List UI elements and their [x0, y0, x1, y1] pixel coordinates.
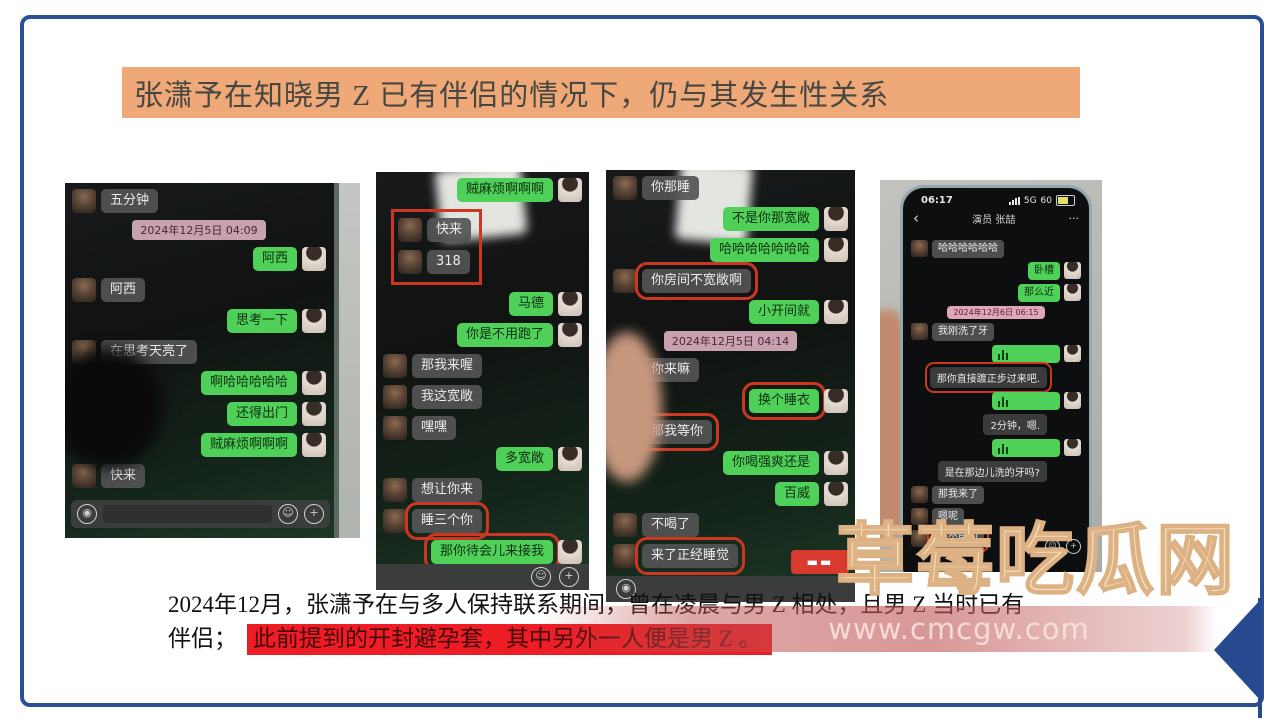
chat-message: 你房间不宽敞啊	[613, 269, 848, 293]
avatar	[558, 540, 582, 564]
avatar	[302, 247, 326, 271]
chat-message: 马德	[383, 292, 582, 316]
timestamp-pill: 2024年12月5日 04:09	[132, 220, 265, 240]
avatar	[383, 478, 407, 502]
voice-input-icon: ◉	[77, 504, 97, 524]
voice-transcript: 那你直接踱正步过来吧.	[911, 367, 1081, 388]
voice-message-bubble	[992, 392, 1060, 410]
title-banner: 张潇予在知晓男 Z 已有伴侣的情况下，仍与其发生性关系	[122, 67, 1080, 118]
chat-message: 那你待会儿来接我	[383, 540, 582, 564]
timestamp-pill: 2024年12月6日 06:15	[947, 306, 1044, 319]
avatar	[1064, 439, 1081, 456]
emoji-icon: ☺	[278, 504, 298, 524]
avatar	[72, 189, 96, 213]
avatar	[383, 385, 407, 409]
watermark-url: www.cmcgw.com	[828, 612, 1089, 646]
voice-transcript-bubble: 2分钟，嗯.	[983, 414, 1047, 435]
battery-icon	[1056, 195, 1075, 206]
chat-message: 哈哈哈哈哈哈哈	[613, 238, 848, 262]
message-bubble: 那么近	[1018, 284, 1060, 302]
avatar	[1064, 284, 1081, 301]
chat-message: 阿西	[72, 278, 326, 302]
message-bubble: 睡三个你	[412, 509, 482, 533]
message-bubble: 马德	[509, 292, 553, 316]
chat-input-bar: ☺ +	[376, 564, 589, 590]
message-bubble: 那我来喔	[412, 354, 482, 378]
phone-2-chat: 贼麻烦啊啊啊快来318马德你是不用跑了那我来喔我这宽敞嘿嘿多宽敞想让你来睡三个你…	[383, 178, 582, 590]
chat-message: 那我来喔	[383, 354, 582, 378]
phone-screenshot-2: 贼麻烦啊啊啊快来318马德你是不用跑了那我来喔我这宽敞嘿嘿多宽敞想让你来睡三个你…	[376, 172, 589, 590]
plus-icon: +	[559, 567, 579, 587]
avatar	[613, 176, 637, 200]
message-bubble: 哈哈哈哈哈哈	[932, 240, 1004, 258]
avatar	[558, 323, 582, 347]
message-bubble: 我这宽敞	[412, 385, 482, 409]
avatar	[613, 544, 637, 568]
chat-message: 贼麻烦啊啊啊	[383, 178, 582, 202]
slide: 张潇予在知晓男 Z 已有伴侣的情况下，仍与其发生性关系 五分钟2024年12月5…	[0, 0, 1280, 720]
avatar	[1064, 262, 1081, 279]
emoji-icon: ☺	[531, 567, 551, 587]
timestamp: 2024年12月6日 06:15	[911, 306, 1081, 319]
back-chevron-icon: ‹	[913, 209, 919, 227]
chat-message: 哈哈哈哈哈哈	[911, 240, 1081, 258]
avatar	[824, 207, 848, 231]
phone-screenshot-3: 你那睡不是你那宽敞哈哈哈哈哈哈哈你房间不宽敞啊小开间就2024年12月5日 04…	[606, 170, 855, 602]
message-bubble: 不是你那宽敞	[723, 207, 819, 231]
avatar	[558, 447, 582, 471]
message-bubble: 阿西	[253, 247, 297, 271]
message-bubble: 你房间不宽敞啊	[642, 269, 751, 293]
phone-edge	[334, 183, 339, 538]
chat-message: 小开间就	[613, 300, 848, 324]
avatar	[911, 240, 928, 257]
message-bubble: 贼麻烦啊啊啊	[457, 178, 553, 202]
message-bubble: 不喝了	[642, 513, 699, 537]
avatar	[1064, 345, 1081, 362]
chat-message: 那么近	[911, 284, 1081, 302]
avatar	[383, 416, 407, 440]
watermark-brand: 草莓吃瓜网	[836, 498, 1236, 610]
message-bubble: 卧槽	[1028, 262, 1060, 280]
avatar	[558, 292, 582, 316]
chat-message: 我这宽敞	[383, 385, 582, 409]
network-label: 5G	[1024, 196, 1037, 206]
avatar	[824, 238, 848, 262]
avatar	[302, 402, 326, 426]
chat-message: 我刚洗了牙	[911, 323, 1081, 341]
chat-message: 五分钟	[72, 189, 326, 213]
timestamp: 2024年12月5日 04:09	[72, 220, 326, 240]
annotation-box: 快来318	[391, 209, 482, 285]
message-bubble: 多宽敞	[496, 447, 553, 471]
chat-title: 演员 张喆	[972, 211, 1015, 226]
voice-transcript-bubble: 是在那边儿洗的牙吗?	[938, 461, 1047, 482]
chat-message: 嘿嘿	[383, 416, 582, 440]
timestamp-pill: 2024年12月5日 04:14	[664, 331, 797, 351]
message-bubble: 我刚洗了牙	[932, 323, 994, 341]
avatar	[302, 433, 326, 457]
battery-percent: 60	[1041, 196, 1052, 206]
chat-nav-bar: ‹ 演员 张喆 ···	[903, 208, 1089, 230]
plus-icon: +	[304, 504, 324, 524]
avatar	[824, 451, 848, 475]
avatar	[398, 218, 422, 242]
avatar	[613, 513, 637, 537]
avatar	[824, 300, 848, 324]
voice-message-bubble	[992, 345, 1060, 363]
voice-transcript-bubble: 那你直接踱正步过来吧.	[930, 367, 1047, 388]
avatar	[383, 354, 407, 378]
chat-message: 不是你那宽敞	[613, 207, 848, 231]
chat-input-bar: ◉ ☺ +	[71, 500, 330, 528]
message-bubble: 还得出门	[227, 402, 297, 426]
avatar	[72, 278, 96, 302]
phone-screenshot-1: 五分钟2024年12月5日 04:09阿西阿西思考一下在思考天亮了啊哈哈哈哈哈还…	[65, 183, 360, 538]
status-bar: 06:17 5G 60	[903, 188, 1089, 208]
avatar	[383, 509, 407, 533]
message-bubble: 换个睡衣	[749, 389, 819, 413]
message-bubble: 嘿嘿	[412, 416, 456, 440]
chat-message: 想让你来	[383, 478, 582, 502]
message-bubble: 啊哈哈哈哈哈	[201, 371, 297, 395]
chat-message: 阿西	[72, 247, 326, 271]
avatar	[72, 464, 96, 488]
avatar	[1064, 392, 1081, 409]
chat-message: 318	[398, 250, 471, 274]
message-bubble: 思考一下	[227, 309, 297, 333]
chat-message	[911, 392, 1081, 410]
message-bubble: 快来	[427, 218, 471, 242]
message-bubble: 百威	[775, 482, 819, 506]
caption-line-2-prefix: 伴侣；	[168, 626, 237, 651]
avatar	[824, 389, 848, 413]
message-bubble: 来了正经睡觉	[642, 544, 738, 568]
chat-message: 你那睡	[613, 176, 848, 200]
chat-message: 思考一下	[72, 309, 326, 333]
chat-message: 卧槽	[911, 262, 1081, 280]
message-bubble: 想让你来	[412, 478, 482, 502]
chat-message	[911, 345, 1081, 363]
wall-background	[339, 183, 360, 538]
message-bubble: 阿西	[101, 278, 145, 302]
watermark-band: www.cmcgw.com	[540, 606, 1218, 652]
message-bubble: 五分钟	[101, 189, 158, 213]
message-bubble: 你喝强爽还是	[723, 451, 819, 475]
avatar	[302, 309, 326, 333]
signal-icon	[1009, 197, 1020, 205]
chat-message: 百威	[613, 482, 848, 506]
avatar	[911, 323, 928, 340]
avatar	[302, 371, 326, 395]
slide-title: 张潇予在知晓男 Z 已有伴侣的情况下，仍与其发生性关系	[122, 72, 889, 114]
status-time: 06:17	[921, 195, 953, 206]
chat-message: 你是不用跑了	[383, 323, 582, 347]
voice-transcript: 是在那边儿洗的牙吗?	[911, 461, 1081, 482]
avatar	[398, 250, 422, 274]
message-bubble: 318	[427, 250, 470, 274]
message-input-field	[103, 505, 272, 523]
voice-transcript: 2分钟，嗯.	[911, 414, 1081, 435]
voice-message-bubble	[992, 439, 1060, 457]
chat-message: 不喝了	[613, 513, 848, 537]
avatar	[613, 269, 637, 293]
chat-message: 快来	[398, 218, 471, 242]
message-bubble: 那你待会儿来接我	[431, 540, 553, 564]
chat-message: 多宽敞	[383, 447, 582, 471]
message-bubble: 你是不用跑了	[457, 323, 553, 347]
message-bubble: 哈哈哈哈哈哈哈	[710, 238, 819, 262]
more-icon: ···	[1069, 212, 1080, 225]
chat-message	[911, 439, 1081, 457]
message-bubble: 小开间就	[749, 300, 819, 324]
chat-message: 睡三个你	[383, 509, 582, 533]
message-bubble: 你那睡	[642, 176, 699, 200]
message-bubble: 贼麻烦啊啊啊	[201, 433, 297, 457]
avatar	[558, 178, 582, 202]
